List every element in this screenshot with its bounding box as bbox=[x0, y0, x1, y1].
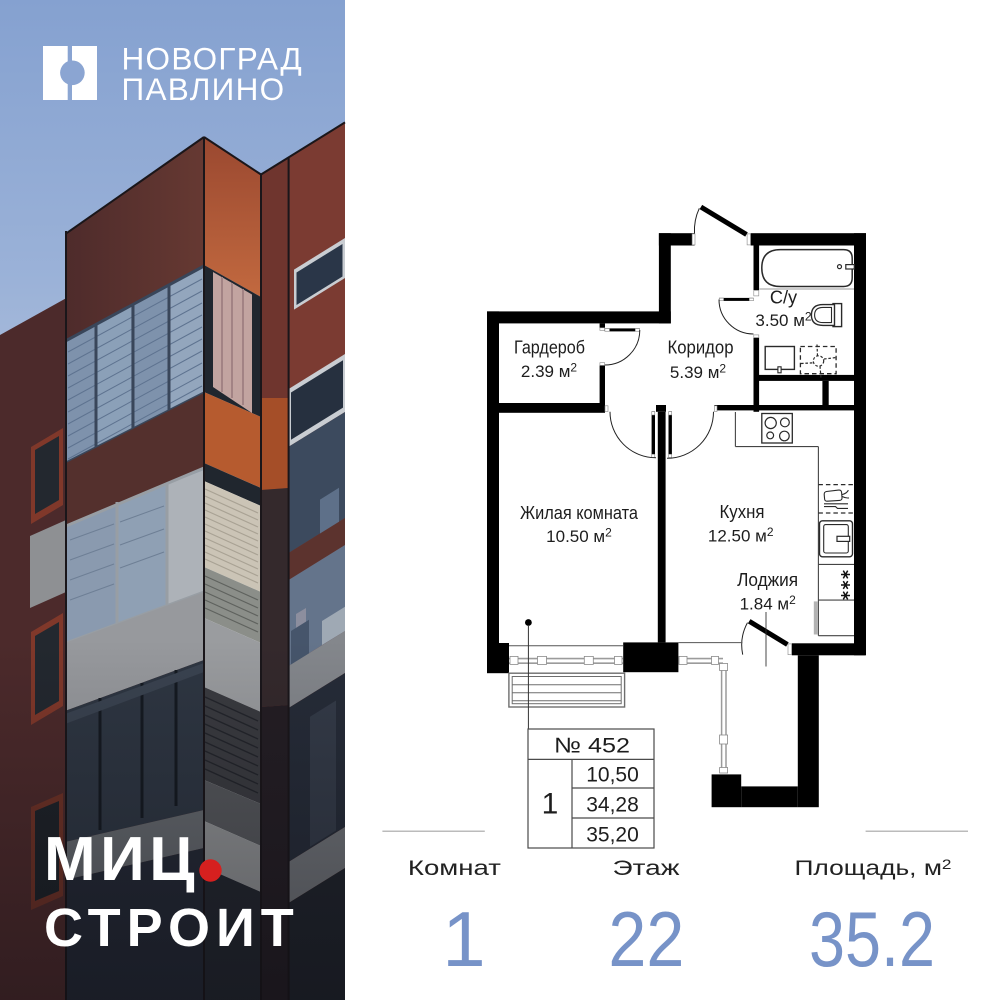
svg-text:Жилая комната: Жилая комната bbox=[520, 503, 639, 523]
svg-text:34,28: 34,28 bbox=[586, 794, 639, 817]
svg-text:22: 22 bbox=[608, 895, 684, 983]
svg-text:ПАВЛИНО: ПАВЛИНО bbox=[122, 71, 286, 107]
svg-text:10,50: 10,50 bbox=[586, 764, 639, 787]
svg-text:МИЦ: МИЦ bbox=[44, 825, 199, 894]
svg-text:35,20: 35,20 bbox=[586, 824, 639, 847]
svg-text:С/у: С/у bbox=[770, 288, 798, 308]
svg-text:2.39 м2: 2.39 м2 bbox=[521, 361, 578, 382]
svg-text:СТРОИТ: СТРОИТ bbox=[44, 898, 300, 958]
svg-text:№ 452: № 452 bbox=[554, 734, 630, 758]
svg-text:Кухня: Кухня bbox=[720, 502, 765, 522]
svg-text:1: 1 bbox=[442, 895, 485, 983]
svg-text:5.39 м2: 5.39 м2 bbox=[670, 361, 727, 382]
svg-text:1.84 м2: 1.84 м2 bbox=[740, 593, 797, 614]
svg-text:Комнат: Комнат bbox=[408, 856, 501, 880]
svg-text:35.2: 35.2 bbox=[809, 895, 935, 983]
svg-text:Лоджия: Лоджия bbox=[737, 570, 798, 590]
svg-text:1: 1 bbox=[542, 788, 559, 821]
svg-text:12.50 м2: 12.50 м2 bbox=[708, 525, 774, 546]
svg-text:Гардероб: Гардероб bbox=[514, 338, 585, 358]
svg-text:Этаж: Этаж bbox=[613, 856, 681, 880]
svg-text:3.50 м2: 3.50 м2 bbox=[755, 309, 812, 330]
svg-text:Площадь, м2: Площадь, м2 bbox=[795, 856, 952, 880]
svg-text:Коридор: Коридор bbox=[668, 338, 734, 358]
svg-text:10.50 м2: 10.50 м2 bbox=[546, 525, 612, 546]
